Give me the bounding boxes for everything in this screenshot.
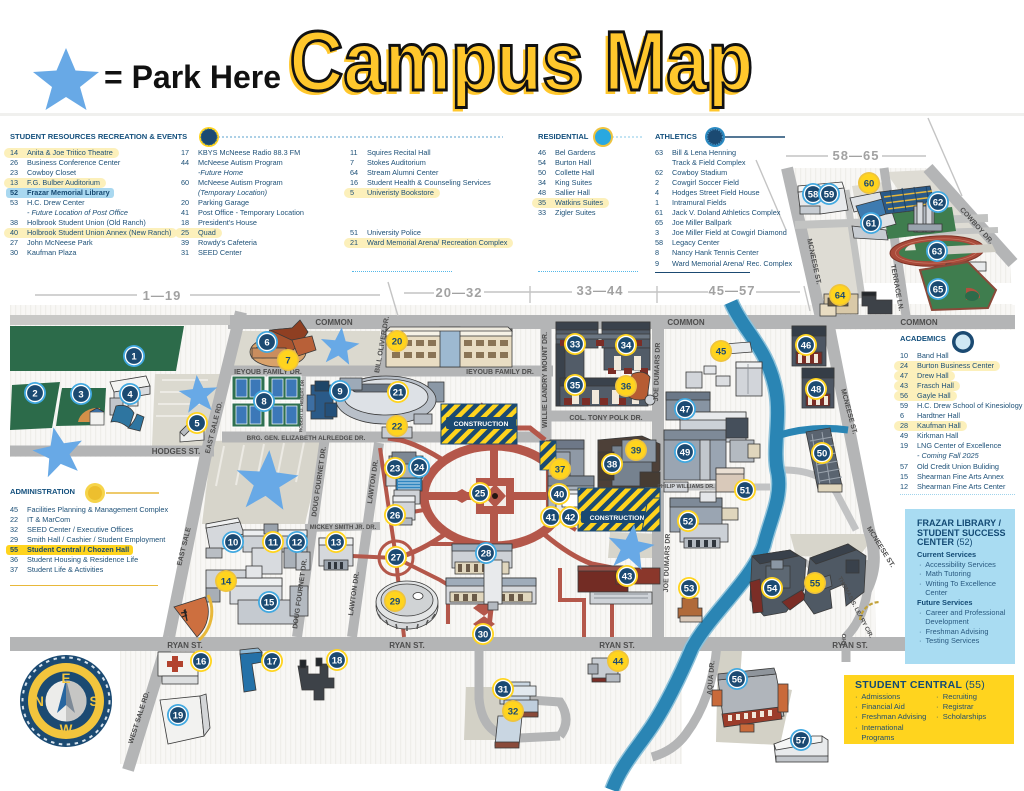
svg-text:62: 62 [933,197,944,208]
svg-text:15: 15 [264,597,275,608]
svg-text:6: 6 [264,337,269,348]
svg-text:RYAN ST.: RYAN ST. [599,641,634,650]
svg-text:BRG. GEN. ELIZABETH ALRLEDGE D: BRG. GEN. ELIZABETH ALRLEDGE DR. [247,435,366,442]
svg-text:E: E [61,671,70,686]
svg-text:58: 58 [808,189,819,200]
svg-text:58—65: 58—65 [833,148,880,163]
svg-text:8: 8 [261,396,266,407]
svg-text:PHILIP WILLIAMS DR.: PHILIP WILLIAMS DR. [657,484,715,490]
svg-text:45: 45 [716,346,727,357]
svg-text:20—32: 20—32 [436,285,483,300]
svg-text:54: 54 [767,583,778,594]
svg-text:7: 7 [285,355,290,366]
svg-text:W: W [60,722,73,737]
svg-text:COL. TONY POLK DR.: COL. TONY POLK DR. [569,415,642,422]
svg-text:59: 59 [824,189,835,200]
svg-text:46: 46 [801,340,812,351]
svg-text:61: 61 [866,218,877,229]
svg-text:33—44: 33—44 [577,283,624,298]
svg-text:37: 37 [555,464,566,475]
svg-text:5: 5 [194,418,200,429]
svg-text:32: 32 [508,706,519,717]
svg-text:MICKEY SMITH JR. DR.: MICKEY SMITH JR. DR. [310,525,377,531]
svg-text:60: 60 [864,178,875,189]
svg-text:CONSTRUCTION: CONSTRUCTION [454,421,509,428]
svg-text:22: 22 [392,421,403,432]
svg-text:RYAN ST.: RYAN ST. [832,641,867,650]
svg-text:65: 65 [933,284,944,295]
svg-text:40: 40 [554,489,565,500]
svg-text:34: 34 [621,340,632,351]
svg-text:27: 27 [391,552,402,563]
svg-text:48: 48 [811,384,822,395]
svg-text:4: 4 [127,389,133,400]
svg-text:11: 11 [268,537,279,548]
svg-text:42: 42 [565,512,576,523]
svg-text:2: 2 [32,388,37,399]
svg-text:57: 57 [796,735,807,746]
svg-text:3: 3 [78,389,83,400]
svg-text:16: 16 [196,656,207,667]
svg-text:CONSTRUCTION: CONSTRUCTION [590,515,645,522]
svg-text:26: 26 [390,510,401,521]
svg-text:N: N [34,694,44,709]
svg-text:28: 28 [481,548,492,559]
svg-text:19: 19 [173,710,184,721]
svg-text:S: S [89,694,98,709]
svg-text:30: 30 [478,629,489,640]
svg-text:13: 13 [331,537,342,548]
svg-text:63: 63 [932,246,943,257]
svg-text:38: 38 [607,459,618,470]
svg-text:14: 14 [221,576,232,587]
svg-text:39: 39 [631,445,642,456]
svg-text:45—57: 45—57 [709,283,756,298]
svg-text:24: 24 [414,462,425,473]
svg-text:25: 25 [475,488,486,499]
svg-text:55: 55 [810,578,821,589]
svg-text:COMMON: COMMON [667,318,705,327]
svg-text:HODGES ST.: HODGES ST. [152,447,200,456]
svg-text:44: 44 [613,656,624,667]
svg-text:COMMON: COMMON [900,318,938,327]
svg-text:29: 29 [390,596,401,607]
svg-text:RYAN ST.: RYAN ST. [389,641,424,650]
svg-text:12: 12 [292,537,303,548]
svg-text:56: 56 [732,674,743,685]
svg-text:IEYOUB FAMILY DR.: IEYOUB FAMILY DR. [466,369,534,376]
svg-text:36: 36 [621,381,632,392]
svg-text:43: 43 [622,571,633,582]
svg-text:21: 21 [393,387,404,398]
svg-text:18: 18 [332,655,343,666]
svg-text:20: 20 [392,336,403,347]
svg-text:RYAN ST.: RYAN ST. [167,641,202,650]
svg-text:41: 41 [546,512,557,523]
svg-text:53: 53 [684,583,695,594]
svg-text:47: 47 [680,404,691,415]
svg-text:51: 51 [740,485,751,496]
svg-text:17: 17 [267,656,278,667]
svg-text:1—19: 1—19 [143,288,182,303]
svg-text:31: 31 [498,684,509,695]
svg-text:64: 64 [835,290,846,301]
svg-text:33: 33 [570,339,581,350]
svg-text:49: 49 [680,447,691,458]
svg-text:COMMON: COMMON [315,318,353,327]
svg-text:1: 1 [131,351,137,362]
svg-text:9: 9 [337,386,342,397]
svg-text:10: 10 [228,537,239,548]
svg-text:35: 35 [570,380,581,391]
svg-text:52: 52 [683,516,694,527]
svg-text:50: 50 [817,448,828,459]
svg-text:23: 23 [390,463,401,474]
svg-text:THO: THO [842,633,848,646]
svg-text:WILLIE LANDRY MOUNT DR.: WILLIE LANDRY MOUNT DR. [542,332,549,428]
